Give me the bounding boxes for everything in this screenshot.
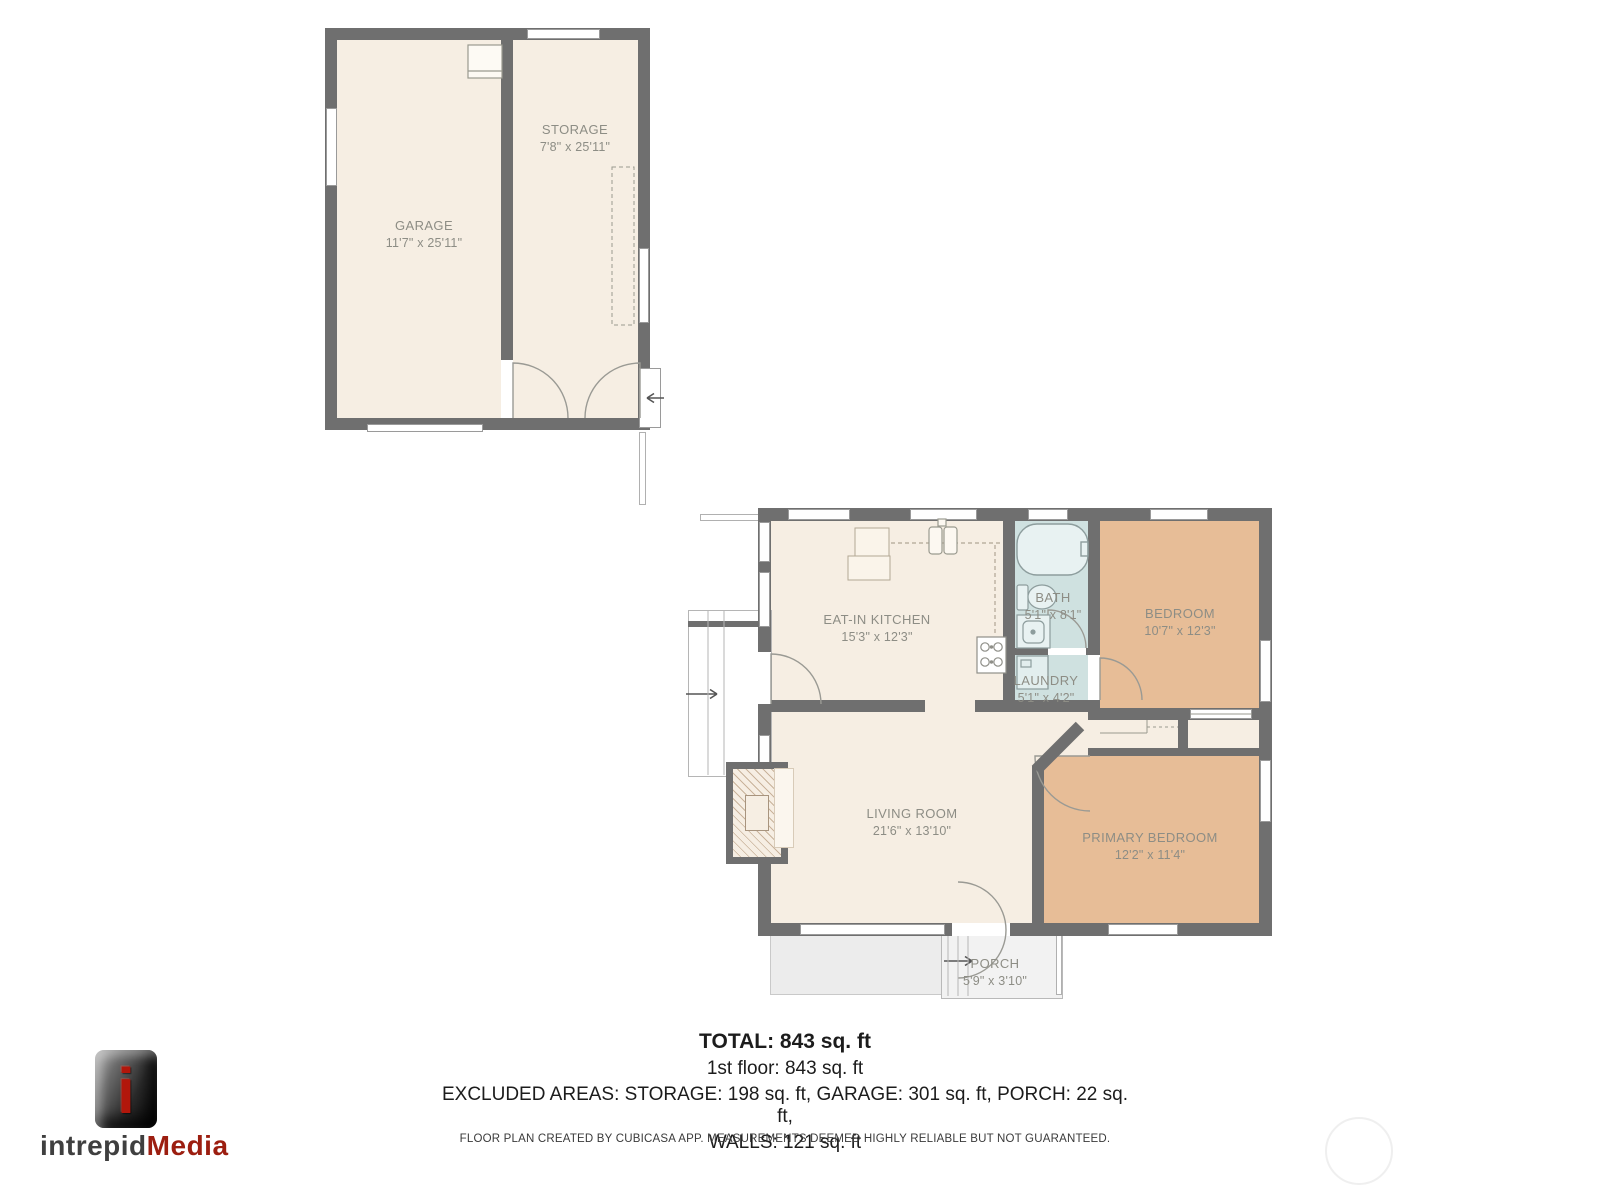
room-name: LIVING ROOM: [866, 806, 957, 821]
garage-room-label: GARAGE 11'7" x 25'11": [354, 217, 494, 252]
fireplace-firebox: [745, 795, 769, 831]
kitchen-living-opening: [925, 700, 975, 712]
first-floor-area-text: 1st floor: 843 sq. ft: [435, 1058, 1135, 1080]
disclaimer-text: FLOOR PLAN CREATED BY CUBICASA APP. MEAS…: [435, 1133, 1135, 1145]
garage-door-marking: [367, 424, 483, 432]
primary-window-right: [1260, 760, 1271, 822]
kitchen-entry-door-gap: [758, 652, 771, 704]
bedroom-room-label: BEDROOM 10'7" x 12'3": [1110, 605, 1250, 640]
laundry-room-label: LAUNDRY 5'1" x 4'2": [976, 672, 1116, 707]
room-name: EAT-IN KITCHEN: [823, 612, 930, 627]
bedroom-window-top: [1150, 509, 1208, 520]
room-name: LAUNDRY: [1014, 673, 1079, 688]
bath-door-gap: [1048, 648, 1086, 655]
divider-door-gap: [501, 360, 513, 418]
logo-brand-left: intrepid: [40, 1130, 147, 1161]
excluded-areas-text: EXCLUDED AREAS: STORAGE: 198 sq. ft, GAR…: [435, 1084, 1135, 1128]
room-dims: 5'1" x 4'2": [1018, 691, 1075, 705]
room-name: STORAGE: [542, 122, 608, 137]
room-dims: 11'7" x 25'11": [386, 236, 462, 250]
bedroom-window-right: [1260, 640, 1271, 702]
bath-window-top: [1028, 509, 1068, 520]
logo-brand-right: Media: [147, 1130, 229, 1161]
room-name: PORCH: [971, 956, 1020, 971]
kitchen-window-top-1: [788, 509, 850, 520]
porch-door-gap: [952, 923, 1010, 936]
room-dims: 12'2" x 11'4": [1115, 848, 1185, 862]
room-name: PRIMARY BEDROOM: [1082, 830, 1218, 845]
watermark-circle: [1325, 1117, 1393, 1185]
living-room-label: LIVING ROOM 21'6" x 13'10": [822, 805, 1002, 840]
garage-window-left: [326, 108, 337, 186]
living-window-bottom: [800, 924, 945, 935]
room-name: BATH: [1035, 590, 1070, 605]
fireplace-hearth: [774, 768, 794, 848]
closet-divider-wall: [1178, 708, 1188, 756]
fence-line-porch-right: [1056, 935, 1062, 995]
logo-i-letter: i: [95, 1052, 157, 1130]
floor-plan-canvas: GARAGE 11'7" x 25'11" STORAGE 7'8" x 25'…: [0, 0, 1599, 1199]
garage-wall-top: [325, 28, 650, 40]
primary-window-bottom: [1108, 924, 1178, 935]
bath-floor: [1015, 521, 1088, 648]
kitchen-room-label: EAT-IN KITCHEN 15'3" x 12'3": [792, 611, 962, 646]
storage-window-right: [639, 248, 649, 323]
room-dims: 5'1" x 8'1": [1025, 608, 1082, 622]
intrepid-media-logo: i intrepidMedia: [40, 1048, 250, 1173]
storage-window-top: [527, 29, 600, 39]
bedroom-closet-slider: [1190, 709, 1252, 719]
room-name: BEDROOM: [1145, 606, 1215, 621]
room-dims: 21'6" x 13'10": [873, 824, 951, 838]
room-dims: 5'9" x 3'10": [963, 974, 1027, 988]
garage-wall-left: [325, 28, 337, 430]
storage-room-label: STORAGE 7'8" x 25'11": [505, 121, 645, 156]
porch-deck: [770, 935, 943, 995]
storage-entry-threshold: [639, 368, 661, 428]
logo-cube-icon: i: [95, 1050, 157, 1128]
room-name: GARAGE: [395, 218, 453, 233]
house-wall-right: [1259, 508, 1272, 936]
storage-floor: [513, 40, 638, 418]
total-area-text: TOTAL: 843 sq. ft: [435, 1030, 1135, 1054]
primary-bedroom-label: PRIMARY BEDROOM 12'2" x 11'4": [1050, 829, 1250, 864]
bath-room-label: BATH 5'1" x 8'1": [993, 589, 1113, 624]
fence-line-garage: [639, 432, 646, 505]
kitchen-window-left-2: [759, 572, 770, 627]
living-window-left: [759, 735, 770, 765]
room-dims: 10'7" x 12'3": [1144, 624, 1215, 638]
kitchen-window-top-2: [910, 509, 977, 520]
living-primary-wall: [1032, 766, 1044, 923]
porch-label: PORCH 5'9" x 3'10": [935, 955, 1055, 990]
room-dims: 15'3" x 12'3": [841, 630, 912, 644]
room-dims: 7'8" x 25'11": [540, 140, 610, 154]
logo-wordmark: intrepidMedia: [40, 1130, 250, 1162]
kitchen-window-left-1: [759, 522, 770, 562]
